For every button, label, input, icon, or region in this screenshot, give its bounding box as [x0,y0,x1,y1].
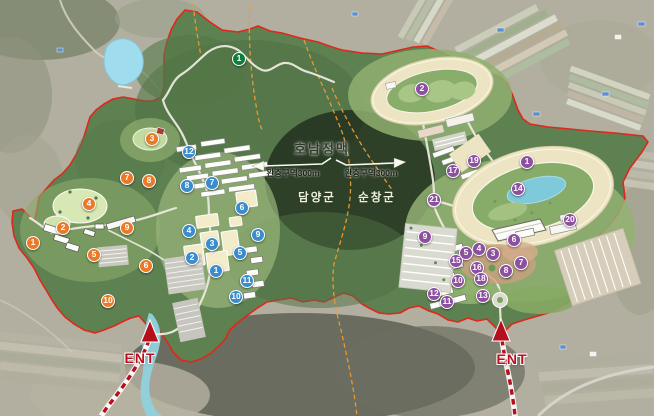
marker-blue-9[interactable]: 9 [251,228,265,242]
marker-orange-2[interactable]: 2 [56,221,70,235]
marker-purple-3[interactable]: 3 [486,247,500,261]
marker-purple-7[interactable]: 7 [514,256,528,270]
marker-purple-6[interactable]: 6 [507,233,521,247]
marker-purple-9[interactable]: 9 [418,230,432,244]
marker-blue-8[interactable]: 8 [180,179,194,193]
marker-blue-12[interactable]: 12 [182,145,196,159]
lake [104,39,143,85]
marker-orange-7[interactable]: 7 [120,171,134,185]
marker-purple-12[interactable]: 12 [427,287,441,301]
map-artwork [0,0,654,416]
marker-purple-13[interactable]: 13 [476,289,490,303]
marker-purple-14[interactable]: 14 [511,182,525,196]
marker-purple-10[interactable]: 10 [451,274,465,288]
marker-purple-4[interactable]: 4 [472,242,486,256]
marker-blue-2[interactable]: 2 [185,251,199,265]
marker-purple-17[interactable]: 17 [446,164,460,178]
marker-purple-15[interactable]: 15 [449,254,463,268]
marker-orange-8[interactable]: 8 [142,174,156,188]
site-plan-map: 호남정맥 완충구역300m 완충구역300m 담양군 순창군 ENT ENT 1… [0,0,654,416]
marker-purple-1[interactable]: 1 [520,155,534,169]
marker-orange-6[interactable]: 6 [139,259,153,273]
marker-purple-19[interactable]: 19 [467,154,481,168]
marker-orange-5[interactable]: 5 [87,248,101,262]
marker-blue-6[interactable]: 6 [235,201,249,215]
marker-blue-1[interactable]: 1 [209,264,223,278]
marker-orange-1[interactable]: 1 [26,236,40,250]
marker-purple-8[interactable]: 8 [499,264,513,278]
marker-purple-21[interactable]: 21 [427,193,441,207]
marker-blue-11[interactable]: 11 [240,274,254,288]
marker-blue-5[interactable]: 5 [233,246,247,260]
marker-blue-4[interactable]: 4 [182,224,196,238]
marker-blue-10[interactable]: 10 [229,290,243,304]
marker-orange-3[interactable]: 3 [145,132,159,146]
marker-orange-9[interactable]: 9 [120,221,134,235]
marker-purple-2[interactable]: 2 [415,82,429,96]
marker-blue-3[interactable]: 3 [205,237,219,251]
marker-purple-11[interactable]: 11 [440,295,454,309]
marker-orange-10[interactable]: 10 [101,294,115,308]
marker-blue-7[interactable]: 7 [205,176,219,190]
marker-orange-4[interactable]: 4 [82,197,96,211]
marker-purple-20[interactable]: 20 [563,213,577,227]
marker-green-1[interactable]: 1 [232,52,246,66]
marker-purple-18[interactable]: 18 [474,272,488,286]
